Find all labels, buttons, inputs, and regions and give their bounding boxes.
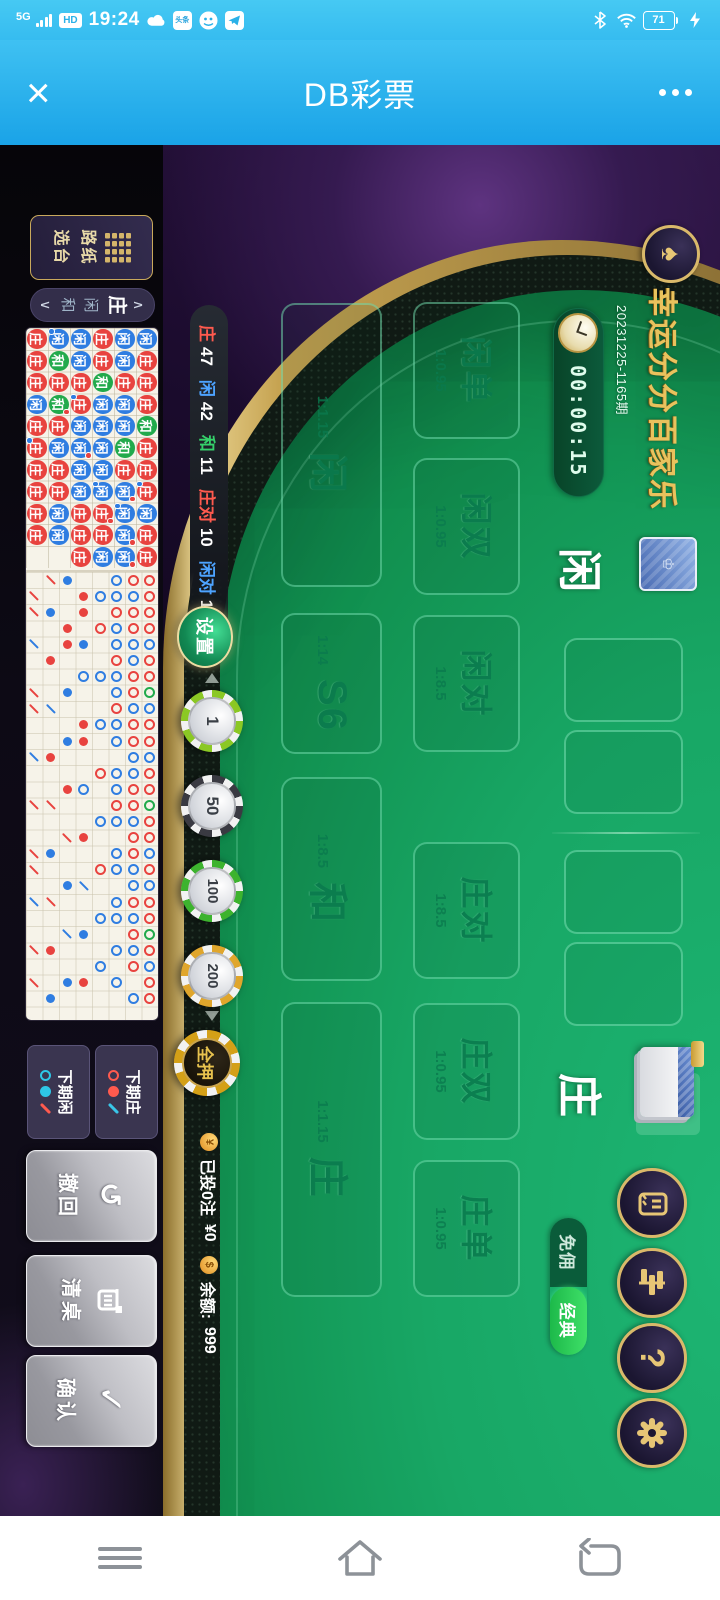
bet-area-庄[interactable]: 1:1.15庄	[281, 1002, 382, 1297]
bet-info-bar: ¥ 已投0注 ¥0 $ 余额: 999	[195, 1133, 223, 1354]
road-circle	[111, 591, 122, 602]
balance-label: 余额:	[197, 1282, 221, 1319]
road-circle	[144, 945, 155, 956]
bead-庄: 庄	[27, 504, 47, 524]
bead-闲: 闲	[71, 438, 91, 458]
bead-闲: 闲	[93, 482, 113, 502]
stat-和: 和11	[197, 435, 222, 475]
road-circle	[128, 655, 139, 666]
bead-闲: 闲	[115, 416, 135, 436]
road-circle	[95, 591, 106, 602]
placed-amount: ¥0	[200, 1224, 218, 1242]
road-circle	[144, 768, 155, 779]
bead-庄: 庄	[71, 373, 91, 393]
center-divider	[552, 832, 700, 834]
bead-庄: 庄	[137, 395, 157, 415]
bead-闲: 闲	[137, 504, 157, 524]
road-select-label-1: 路纸	[79, 229, 103, 265]
selector-option-和[interactable]: 和	[57, 297, 76, 312]
road-circle	[128, 575, 139, 586]
road-dot	[79, 833, 88, 842]
bet-label: 庄单	[455, 1194, 501, 1262]
road-circle	[128, 687, 139, 698]
placed-bets-label: 已投0注	[197, 1159, 221, 1216]
bet-area-闲对[interactable]: 闲对1:8.5	[413, 615, 520, 752]
bead-和: 和	[49, 351, 69, 371]
bet-odds: 1:1.15	[314, 1100, 331, 1143]
gear-icon[interactable]	[617, 1398, 687, 1468]
road-circle	[128, 607, 139, 618]
bead-闲: 闲	[49, 438, 69, 458]
hd-badge: HD	[59, 13, 81, 28]
road-circle	[144, 736, 155, 747]
bead-闲: 闲	[115, 395, 135, 415]
road-circle	[95, 816, 106, 827]
road-circle	[128, 768, 139, 779]
road-circle	[111, 623, 122, 634]
road-dot	[79, 592, 88, 601]
road-circle	[78, 784, 89, 795]
bead-庄: 庄	[27, 525, 47, 545]
bead-闲: 闲	[115, 329, 135, 349]
bead-闲: 闲	[71, 416, 91, 436]
bead-闲: 闲	[115, 504, 135, 524]
road-circle	[128, 752, 139, 763]
bet-label: 庄双	[455, 1037, 501, 1105]
banker-pair-dot	[107, 518, 114, 525]
road-circle	[128, 993, 139, 1004]
banker-label: 庄	[551, 1073, 615, 1117]
telegram-icon	[225, 11, 244, 30]
road-dot	[63, 688, 72, 697]
road-circle	[144, 913, 155, 924]
network-type: 5G	[16, 12, 31, 23]
road-circle	[95, 961, 106, 972]
road-slash	[29, 591, 39, 601]
road-dot	[46, 753, 55, 762]
selector-prev-icon: ∧	[132, 300, 146, 310]
bead-庄: 庄	[93, 351, 113, 371]
road-circle	[128, 736, 139, 747]
bead-庄: 庄	[137, 460, 157, 480]
spade-lobby-button[interactable]: ♠	[642, 225, 700, 283]
player-label: 闲	[551, 548, 615, 592]
banker-pair-dot	[85, 452, 92, 459]
road-dot	[46, 994, 55, 1003]
banker-road-preview-icon	[109, 1070, 120, 1115]
road-circle	[78, 671, 89, 682]
road-dot	[63, 640, 72, 649]
bead-庄: 庄	[137, 351, 157, 371]
road-slash	[29, 945, 39, 955]
banker-pair-dot	[63, 409, 70, 416]
road-circle	[111, 864, 122, 875]
results-stats-bar: 庄47闲42和11庄对10闲对16	[190, 305, 228, 639]
road-circle	[95, 671, 106, 682]
confirm-label: 确认	[53, 1378, 82, 1424]
road-circle	[111, 655, 122, 666]
player-pair-dot	[48, 328, 55, 335]
road-slash	[29, 639, 39, 649]
road-circle	[144, 929, 155, 940]
road-circle	[111, 768, 122, 779]
road-circle	[128, 800, 139, 811]
bead-庄: 庄	[115, 373, 135, 393]
road-circle	[128, 897, 139, 908]
toggle-option-classic[interactable]: 经典	[550, 1287, 587, 1356]
road-slash	[46, 575, 56, 585]
bet-label: 庄	[303, 1157, 361, 1199]
bead-庄: 庄	[93, 329, 113, 349]
clock-time: 19:24	[89, 9, 140, 31]
road-circle	[144, 655, 155, 666]
undo-label: 撤回	[56, 1173, 85, 1219]
road-circle	[144, 591, 155, 602]
chip-200[interactable]: 200	[181, 945, 243, 1007]
road-circle	[95, 768, 106, 779]
bet-odds: 1:0.95	[432, 1050, 449, 1093]
road-slash	[29, 607, 39, 617]
coin-icon: ¥	[200, 1133, 218, 1151]
road-circle	[128, 591, 139, 602]
game-area: ♠ 幸运分分百家乐 20231225-1165期 00:00:15 ♔ 闲 庄	[0, 145, 720, 1516]
bead-庄: 庄	[71, 547, 91, 567]
settings-oval-button[interactable]: 设置	[177, 606, 233, 668]
bead-庄: 庄	[27, 416, 47, 436]
road-dot	[63, 978, 72, 987]
commission-toggle[interactable]: 免佣 经典	[550, 1218, 587, 1355]
card-squeeze-icon[interactable]	[617, 1168, 687, 1238]
road-slash	[46, 800, 56, 810]
bead-庄: 庄	[27, 373, 47, 393]
bet-area-庄双[interactable]: 庄双1:0.95	[413, 1003, 520, 1140]
clock-icon	[559, 313, 599, 353]
toggle-option-free-commission[interactable]: 免佣	[550, 1218, 587, 1287]
bet-label: 闲对	[455, 649, 501, 717]
road-circle	[128, 639, 139, 650]
bead-闲: 闲	[49, 525, 69, 545]
road-select-button[interactable]: 路纸 选台	[30, 215, 153, 280]
road-circle	[128, 880, 139, 891]
road-circle	[128, 848, 139, 859]
next-player-button[interactable]: 下期闲	[27, 1045, 90, 1139]
chip-100[interactable]: 100	[181, 860, 243, 922]
stat-庄: 庄47	[197, 325, 222, 366]
bead-庄: 庄	[71, 504, 91, 524]
bead-和: 和	[137, 416, 157, 436]
chip-value: 1	[188, 697, 235, 744]
spade-icon: ♠	[656, 247, 687, 261]
bead-庄: 庄	[71, 525, 91, 545]
nav-home-button[interactable]	[300, 1528, 420, 1588]
shoe-gold-clip	[691, 1041, 704, 1067]
bead-庄: 庄	[137, 525, 157, 545]
road-slash	[29, 704, 39, 714]
road-dot	[79, 930, 88, 939]
bead-庄: 庄	[27, 482, 47, 502]
roadmap-panel: 闲闲庄闲闲庄庄闲庄闲和庄庄庄和庄庄庄庄闲闲庄和闲和闲闲闲庄庄庄和闲闲闲庄庄庄闲闲…	[26, 328, 158, 1020]
bead-闲: 闲	[115, 525, 135, 545]
road-select-label-2: 选台	[52, 229, 76, 265]
bead-闲: 闲	[93, 395, 113, 415]
bead-庄: 庄	[93, 525, 113, 545]
bet-area-庄单[interactable]: 庄单1:0.95	[413, 1160, 520, 1297]
road-dot	[46, 608, 55, 617]
road-slash	[46, 704, 56, 714]
battery-level: 71	[643, 11, 675, 30]
selector-option-闲[interactable]: 闲	[81, 297, 100, 312]
signal-icon	[36, 14, 53, 27]
battery-icon: 71	[643, 11, 679, 30]
road-dot	[46, 946, 55, 955]
balance-coin-icon: $	[200, 1256, 218, 1274]
game-title: 幸运分分百家乐	[643, 287, 687, 511]
road-circle	[128, 945, 139, 956]
road-slash	[79, 881, 89, 891]
chip-scroll-right-icon[interactable]	[205, 1011, 219, 1021]
road-circle	[144, 977, 155, 988]
player-road-preview-icon	[41, 1070, 52, 1115]
chip-1[interactable]: 1	[181, 690, 243, 752]
road-circle	[111, 671, 122, 682]
player-card-slot-1	[564, 638, 683, 722]
road-dot	[79, 640, 88, 649]
undo-button[interactable]: ↺ 撤回	[26, 1150, 157, 1242]
bead-和: 和	[49, 395, 69, 415]
road-circle	[144, 993, 155, 1004]
road-circle	[144, 623, 155, 634]
chip-50[interactable]: 50	[181, 775, 243, 837]
road-circle	[144, 961, 155, 972]
bet-area-庄对[interactable]: 庄对1:8.5	[413, 842, 520, 979]
road-circle	[144, 575, 155, 586]
bet-label: 和	[303, 882, 361, 924]
bead-闲: 闲	[71, 329, 91, 349]
bet-area-闲单[interactable]: 闲单1:0.95	[413, 302, 520, 439]
bet-area-S6[interactable]: 1:14S6	[281, 613, 382, 754]
bead-闲: 闲	[115, 482, 135, 502]
bead-庄: 庄	[137, 438, 157, 458]
road-circle	[111, 719, 122, 730]
bet-odds: 1:0.95	[432, 505, 449, 548]
baccarat-table-landscape: ♠ 幸运分分百家乐 20231225-1165期 00:00:15 ♔ 闲 庄	[0, 145, 720, 1516]
bet-area-和[interactable]: 1:8.5和	[281, 777, 382, 981]
bet-odds: 1:8.5	[314, 834, 331, 868]
bead-庄: 庄	[27, 438, 47, 458]
charging-icon	[685, 11, 704, 30]
stat-庄对: 庄对10	[197, 489, 222, 547]
bead-和: 和	[93, 373, 113, 393]
player-pair-dot	[26, 437, 33, 444]
road-dot	[79, 737, 88, 746]
road-slash	[29, 865, 39, 875]
bead-庄: 庄	[49, 460, 69, 480]
wechat-icon	[199, 11, 218, 30]
help-icon[interactable]: ?	[617, 1323, 687, 1393]
selector-next-icon: ∨	[39, 300, 53, 310]
balance-value: 999	[200, 1327, 218, 1354]
road-circle	[95, 913, 106, 924]
road-circle	[144, 752, 155, 763]
road-slash	[29, 849, 39, 859]
cloud-icon	[147, 11, 166, 30]
road-slash	[62, 929, 72, 939]
bead-闲: 闲	[137, 329, 157, 349]
road-slash	[46, 897, 56, 907]
app-header: × DB彩票	[0, 40, 720, 145]
road-dot	[63, 737, 72, 746]
bead-庄: 庄	[49, 416, 69, 436]
road-circle	[95, 864, 106, 875]
bead-闲: 闲	[93, 416, 113, 436]
road-circle	[95, 623, 106, 634]
player-pair-dot	[114, 503, 121, 510]
player-pair-dot	[136, 481, 143, 488]
road-circle	[128, 703, 139, 714]
page-title: DB彩票	[0, 70, 720, 116]
road-circle	[128, 864, 139, 875]
bead-庄: 庄	[137, 482, 157, 502]
chip-全押[interactable]: 全押	[174, 1030, 240, 1096]
bead-庄: 庄	[49, 482, 69, 502]
road-dot	[79, 978, 88, 987]
bet-area-闲双[interactable]: 闲双1:0.95	[413, 458, 520, 595]
road-circle	[144, 848, 155, 859]
road-circle	[128, 719, 139, 730]
clear-table-button[interactable]: 清桌	[26, 1255, 157, 1347]
road-circle	[144, 832, 155, 843]
bet-odds: 1:8.5	[432, 893, 449, 927]
status-bar: 5G HD 19:24 头条 71	[0, 0, 720, 40]
bet-odds: 1:14	[314, 635, 331, 665]
next-banker-button[interactable]: 下期庄	[95, 1045, 158, 1139]
player-card-slot-2	[564, 730, 683, 814]
bead-闲: 闲	[93, 460, 113, 480]
bead-庄: 庄	[93, 504, 113, 524]
banker-card-slot-2	[564, 942, 683, 1026]
road-dot	[63, 576, 72, 585]
check-icon: ✓	[90, 1385, 130, 1417]
road-circle	[144, 607, 155, 618]
road-circle	[144, 639, 155, 650]
road-dot	[63, 785, 72, 794]
confirm-button[interactable]: ✓ 确认	[26, 1355, 157, 1447]
road-circle	[111, 575, 122, 586]
road-circle	[111, 736, 122, 747]
road-circle	[111, 639, 122, 650]
player-pair-dot	[92, 481, 99, 488]
road-circle	[128, 832, 139, 843]
road-dot	[63, 624, 72, 633]
road-dot	[79, 720, 88, 729]
bet-odds: 1:8.5	[432, 666, 449, 700]
bet-odds: 1:0.95	[432, 349, 449, 392]
bead-闲: 闲	[71, 482, 91, 502]
selector-option-庄[interactable]: 庄	[104, 295, 128, 314]
chip-value: 全押	[182, 1038, 232, 1088]
bead-庄: 庄	[27, 329, 47, 349]
bead-闲: 闲	[115, 351, 135, 371]
road-circle	[144, 671, 155, 682]
bead-闲: 闲	[93, 547, 113, 567]
card-shoe	[636, 1047, 700, 1139]
nav-back-button[interactable]	[540, 1528, 660, 1588]
road-circle	[128, 784, 139, 795]
road-circle	[128, 913, 139, 924]
road-circle	[111, 945, 122, 956]
road-circle	[111, 784, 122, 795]
android-nav-bar	[0, 1516, 720, 1600]
undo-icon: ↺	[93, 1182, 128, 1210]
road-circle	[111, 977, 122, 988]
trash-icon	[95, 1286, 125, 1316]
road-circle	[144, 703, 155, 714]
nav-menu-button[interactable]	[60, 1528, 180, 1588]
next-banker-label: 下期庄	[124, 1069, 145, 1114]
trend-stats-icon[interactable]	[617, 1248, 687, 1318]
road-circle	[111, 607, 122, 618]
bet-label: 闲	[303, 452, 361, 494]
banker-pair-dot	[129, 496, 136, 503]
road-circle	[144, 687, 155, 698]
bet-odds: 1:1.15	[314, 396, 331, 439]
player-pair-dot	[70, 394, 77, 401]
road-circle	[111, 816, 122, 827]
bead-和: 和	[115, 438, 135, 458]
road-circle	[128, 623, 139, 634]
next-player-label: 下期闲	[56, 1069, 77, 1114]
bet-label: 闲双	[455, 492, 501, 560]
chip-value: 50	[188, 782, 235, 829]
road-circle	[128, 816, 139, 827]
wifi-icon	[617, 11, 636, 30]
road-circle	[144, 784, 155, 795]
road-circle	[95, 719, 106, 730]
game-type-selector[interactable]: ∧庄闲和∨	[30, 288, 155, 322]
bet-label: 闲单	[455, 336, 501, 404]
bead-闲: 闲	[115, 547, 135, 567]
road-dot	[46, 656, 55, 665]
player-card-back: ♔	[639, 537, 697, 591]
bead-闲: 闲	[27, 395, 47, 415]
bluetooth-icon	[591, 11, 610, 30]
road-slash	[29, 800, 39, 810]
stat-闲: 闲42	[197, 380, 222, 421]
bead-庄: 庄	[115, 460, 135, 480]
bead-road: 闲闲庄闲闲庄庄闲庄闲和庄庄庄和庄庄庄庄闲闲庄和闲和闲闲闲庄庄庄和闲闲闲庄庄庄闲闲…	[26, 328, 158, 568]
chip-value: 200	[188, 952, 235, 999]
road-circle	[111, 800, 122, 811]
grid-icon	[106, 233, 132, 263]
bead-闲: 闲	[71, 460, 91, 480]
banker-pair-dot	[129, 539, 136, 546]
banker-card-slot-1	[564, 850, 683, 934]
bead-庄: 庄	[27, 460, 47, 480]
road-slash	[29, 752, 39, 762]
bead-庄: 庄	[27, 351, 47, 371]
bet-area-闲[interactable]: 1:1.15闲	[281, 303, 382, 587]
road-slash	[29, 977, 39, 987]
road-circle	[144, 800, 155, 811]
road-slash	[62, 833, 72, 843]
chip-value: 100	[188, 867, 235, 914]
road-circle	[144, 897, 155, 908]
road-circle	[128, 929, 139, 940]
bead-闲: 闲	[93, 438, 113, 458]
chip-scroll-left-icon[interactable]	[205, 673, 219, 683]
period-number: 20231225-1165期	[613, 305, 632, 415]
bet-label: S6	[309, 679, 354, 732]
